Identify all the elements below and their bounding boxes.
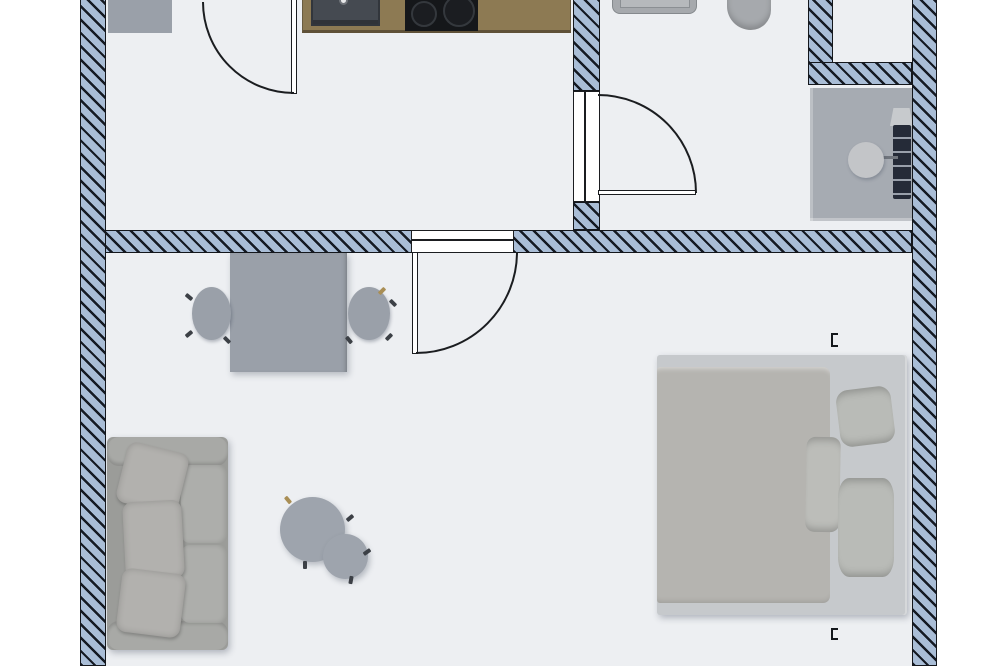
kitchen-floor: [105, 0, 573, 230]
bed-pillow-bottom: [838, 478, 894, 577]
living-room-door-threshold: [411, 230, 514, 253]
wardrobe-handle-icon: [831, 628, 838, 640]
kitchen-sink[interactable]: [311, 0, 380, 26]
radiator-shelf: [890, 108, 913, 126]
wall-mid-left: [105, 230, 412, 253]
wardrobe-handle-icon: [831, 333, 838, 347]
bathroom-door-leaf[interactable]: [598, 190, 696, 195]
dining-table[interactable]: [230, 253, 347, 372]
wall-kitchen-bath-lower: [573, 202, 600, 230]
double-bed[interactable]: [657, 355, 907, 615]
entry-door-leaf[interactable]: [291, 0, 297, 94]
stool[interactable]: [848, 142, 884, 178]
dining-chair-right[interactable]: [348, 287, 390, 340]
sofa-seat-cushion: [181, 545, 228, 623]
floor-plan-canvas: [0, 0, 1000, 666]
sofa[interactable]: [107, 437, 228, 650]
door-jamb: [584, 92, 586, 201]
bed-duvet: [657, 367, 830, 603]
sofa-seat-cushion: [181, 465, 228, 543]
towel-radiator[interactable]: [893, 125, 911, 199]
bed-pillow-top: [835, 385, 897, 448]
burner-right: [443, 0, 475, 27]
faucet-icon: [339, 0, 348, 5]
table-foot: [303, 561, 307, 569]
wall-left-exterior: [80, 0, 106, 666]
living-room-door-leaf[interactable]: [412, 252, 418, 354]
wall-cabinet[interactable]: [108, 0, 172, 33]
sofa-pillow: [115, 567, 186, 638]
bathroom-door-frame: [573, 91, 600, 202]
dining-chair-left[interactable]: [192, 287, 231, 340]
washbasin-bowl: [620, 0, 690, 8]
washbasin[interactable]: [612, 0, 697, 14]
bed-pillow-center: [805, 437, 841, 533]
wall-niche-horizontal: [808, 62, 912, 85]
burner-left: [411, 1, 437, 27]
utility-niche-floor: [833, 0, 912, 62]
wall-right-exterior: [912, 0, 937, 666]
wall-mid-right: [513, 230, 912, 253]
coffee-table-small[interactable]: [323, 534, 368, 579]
door-sill: [412, 239, 513, 241]
wall-kitchen-bath-upper: [573, 0, 600, 91]
cooktop[interactable]: [405, 0, 478, 31]
